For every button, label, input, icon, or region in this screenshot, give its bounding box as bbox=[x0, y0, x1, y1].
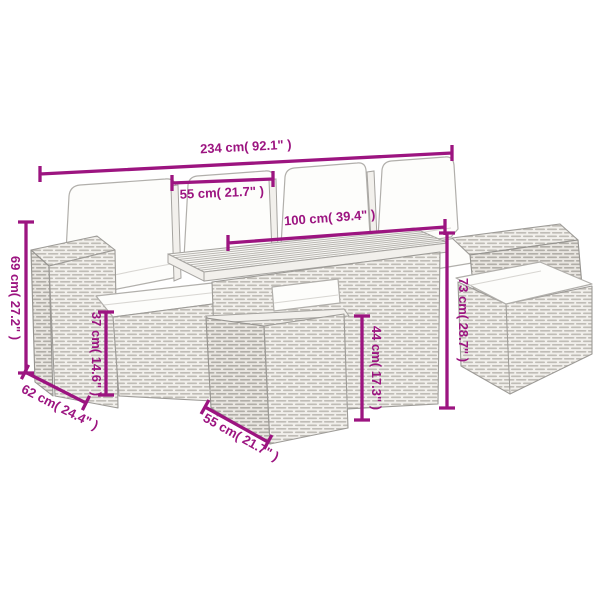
dim-label-back-height: 69 cm( 27.2" ) bbox=[8, 256, 23, 340]
dim-label-stool-height: 44 cm( 17.3" ) bbox=[369, 326, 384, 410]
furniture-illustration bbox=[31, 157, 592, 444]
dim-label-table-height: 73 cm( 28.7" ) bbox=[456, 278, 471, 362]
dimension-diagram-svg: 234 cm( 92.1" ) 55 cm( 21.7" ) 100 cm( 3… bbox=[0, 0, 600, 600]
product-dimension-image: 234 cm( 92.1" ) 55 cm( 21.7" ) 100 cm( 3… bbox=[0, 0, 600, 600]
right-ottoman bbox=[456, 262, 592, 394]
stool-front bbox=[264, 314, 348, 444]
dim-back-height: 69 cm( 27.2" ) bbox=[8, 222, 34, 373]
dim-label-seat-height: 37 cm( 14.6" ) bbox=[89, 312, 104, 396]
dim-label-overall-width: 234 cm( 92.1" ) bbox=[200, 137, 292, 157]
